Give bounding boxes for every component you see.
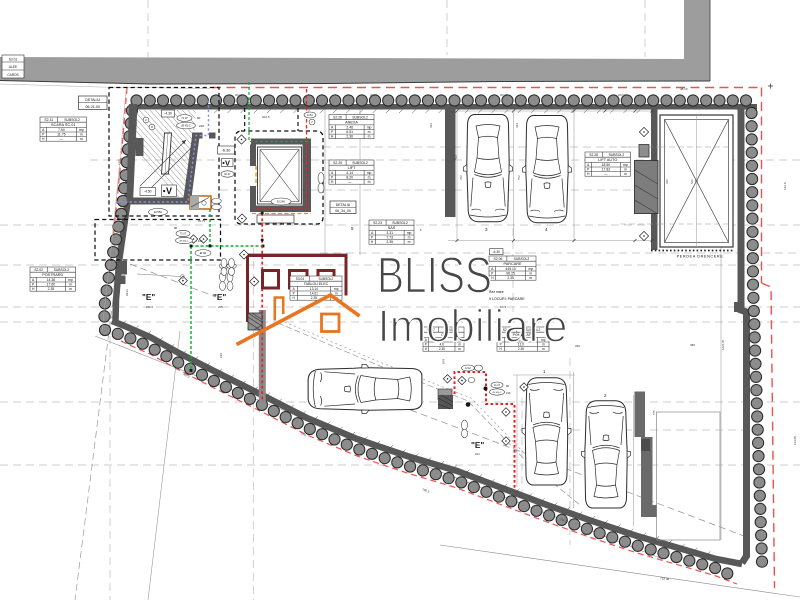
- svg-text:210: 210: [506, 391, 511, 395]
- svg-text:2913: 2913: [125, 289, 129, 296]
- svg-text:-6.30: -6.30: [222, 148, 231, 152]
- svg-text:14.01: 14.01: [310, 292, 318, 296]
- svg-text:ANEXA: ANEXA: [345, 121, 358, 125]
- svg-text:202.5: 202.5: [262, 115, 270, 119]
- svg-text:SUBSOL2: SUBSOL2: [514, 257, 530, 261]
- svg-text:203.5: 203.5: [500, 93, 507, 97]
- svg-text:m: m: [69, 283, 72, 287]
- svg-text:2.35: 2.35: [311, 296, 317, 300]
- svg-text:S2.28: S2.28: [589, 153, 598, 157]
- svg-text:202.5: 202.5: [370, 93, 377, 97]
- svg-text:SUBSOL2: SUBSOL2: [64, 118, 80, 122]
- svg-text:17.60: 17.60: [47, 283, 56, 287]
- svg-text:(El 45)-C: (El 45)-C: [181, 125, 191, 128]
- svg-text:m: m: [368, 176, 371, 180]
- svg-text:241.5: 241.5: [146, 305, 153, 309]
- svg-text:7.73: 7.73: [386, 236, 393, 240]
- svg-text:—: —: [348, 180, 352, 184]
- svg-text:2.35: 2.35: [507, 276, 514, 280]
- svg-text:V: V: [225, 159, 230, 168]
- svg-text:265: 265: [218, 305, 223, 309]
- svg-text:mp: mp: [528, 267, 533, 271]
- svg-text:m: m: [624, 168, 627, 172]
- svg-text:90: 90: [174, 226, 178, 230]
- svg-text:SUBSOL2: SUBSOL2: [319, 277, 334, 281]
- svg-text:PERDEA DRENCERE: PERDEA DRENCERE: [677, 255, 724, 259]
- svg-text:TABLOU ELEC: TABLOU ELEC: [304, 282, 329, 286]
- svg-text:06-21-00: 06-21-00: [86, 105, 100, 109]
- svg-text:mp: mp: [623, 163, 628, 167]
- svg-text:162.0: 162.0: [783, 182, 787, 190]
- svg-text:6.51: 6.51: [346, 130, 353, 134]
- svg-text:PARCARE: PARCARE: [503, 262, 522, 266]
- svg-text:—: —: [604, 172, 608, 176]
- svg-text:472: 472: [459, 175, 463, 180]
- svg-text:m: m: [368, 130, 371, 134]
- svg-text:114.05: 114.05: [793, 436, 797, 445]
- svg-text:V: V: [166, 186, 172, 196]
- svg-text:99.75: 99.75: [198, 219, 205, 223]
- svg-text:752: 752: [517, 175, 521, 180]
- svg-text:SUBSOL2: SUBSOL2: [392, 221, 408, 225]
- svg-text:SUBSOL2: SUBSOL2: [352, 115, 368, 119]
- svg-text:210: 210: [199, 124, 204, 128]
- svg-text:13.14: 13.14: [310, 287, 318, 291]
- svg-text:SAS: SAS: [388, 226, 396, 230]
- svg-text:340: 340: [665, 179, 669, 184]
- svg-text:CAROS: CAROS: [7, 73, 18, 77]
- svg-text:412: 412: [429, 123, 433, 128]
- svg-text:mp: mp: [367, 126, 372, 130]
- svg-text:Imobiliare: Imobiliare: [378, 301, 568, 352]
- svg-text:243: 243: [475, 452, 480, 456]
- svg-text:2.46: 2.46: [346, 126, 353, 130]
- svg-text:71.07: 71.07: [181, 116, 188, 120]
- svg-text:249: 249: [219, 353, 223, 358]
- svg-text:412: 412: [515, 123, 519, 128]
- svg-text:BLISS: BLISS: [377, 247, 492, 304]
- svg-text:S2.06: S2.06: [493, 257, 502, 261]
- svg-text:LIFT AUTO: LIFT AUTO: [598, 158, 617, 162]
- svg-text:m: m: [80, 137, 83, 141]
- svg-text:S2.01: S2.01: [9, 58, 18, 62]
- svg-text:(El 45)-C: (El 45)-C: [180, 241, 189, 243]
- svg-text:"E": "E": [142, 293, 155, 302]
- svg-text:11.75: 11.75: [57, 133, 65, 137]
- svg-text:m: m: [529, 272, 532, 276]
- svg-text:P: P: [293, 292, 295, 296]
- svg-text:S2.02: S2.02: [34, 268, 43, 272]
- svg-text:8.20: 8.20: [346, 176, 353, 180]
- svg-text:S2.25: S2.25: [333, 161, 342, 165]
- svg-text:SUBSOL2: SUBSOL2: [352, 161, 368, 165]
- svg-text:11.07: 11.07: [494, 384, 500, 387]
- svg-text:m: m: [408, 240, 411, 244]
- svg-text:3.31: 3.31: [386, 231, 393, 235]
- svg-text:El 90: El 90: [200, 251, 207, 255]
- svg-text:POSTRARD: POSTRARD: [42, 273, 63, 277]
- svg-text:El 54: El 54: [307, 114, 313, 117]
- svg-text:SUBSOL2: SUBSOL2: [54, 268, 70, 272]
- svg-text:S2.31: S2.31: [44, 118, 53, 122]
- svg-text:mp: mp: [79, 128, 84, 132]
- svg-text:m: m: [69, 287, 72, 291]
- svg-text:-6.30: -6.30: [493, 250, 500, 254]
- svg-text:90: 90: [197, 116, 201, 120]
- svg-text:LIFT: LIFT: [348, 166, 356, 170]
- svg-text:m: m: [368, 180, 371, 184]
- svg-text:mp: mp: [407, 231, 412, 235]
- svg-text:-4.30: -4.30: [164, 112, 172, 116]
- svg-text:El 47: El 47: [225, 172, 231, 176]
- svg-text:SUBSOL2: SUBSOL2: [609, 153, 625, 157]
- svg-text:"E": "E": [471, 441, 484, 450]
- svg-text:96.25: 96.25: [506, 272, 515, 276]
- svg-text:18.50: 18.50: [602, 163, 611, 167]
- svg-text:4.14: 4.14: [346, 171, 353, 175]
- svg-text:71.07: 71.07: [180, 233, 187, 236]
- svg-text:575: 575: [652, 410, 656, 415]
- svg-text:El 240: El 240: [277, 200, 285, 204]
- svg-text:202.5: 202.5: [235, 93, 242, 97]
- svg-text:2.36: 2.36: [346, 135, 353, 139]
- svg-text:1175: 1175: [117, 158, 122, 165]
- svg-text:- 210: - 210: [196, 239, 203, 243]
- svg-text:14.38: 14.38: [47, 278, 56, 282]
- svg-text:445.10: 445.10: [505, 267, 515, 271]
- svg-text:412: 412: [454, 155, 458, 160]
- svg-text:m: m: [368, 135, 371, 139]
- svg-text:mp: mp: [334, 287, 339, 291]
- svg-text:(El 45)-C: (El 45)-C: [493, 392, 502, 394]
- svg-text:SCARA SC.01: SCARA SC.01: [51, 123, 75, 127]
- svg-text:06_34_00: 06_34_00: [335, 209, 351, 213]
- svg-text:DETALIU: DETALIU: [336, 203, 351, 207]
- svg-text:2.35: 2.35: [386, 240, 393, 244]
- svg-text:879: 879: [442, 359, 446, 364]
- svg-text:1223.35: 1223.35: [721, 339, 725, 350]
- svg-text:S2.23: S2.23: [373, 221, 382, 225]
- svg-text:El 42: El 42: [465, 367, 471, 370]
- svg-text:m: m: [335, 292, 338, 296]
- svg-text:2.35: 2.35: [48, 287, 55, 291]
- svg-text:380: 380: [690, 343, 695, 347]
- svg-text:DETALIU: DETALIU: [85, 98, 100, 102]
- svg-text:203.5: 203.5: [618, 93, 625, 97]
- svg-text:mp: mp: [68, 278, 73, 282]
- svg-text:El 552: El 552: [154, 210, 162, 214]
- svg-text:m: m: [529, 276, 532, 280]
- svg-text:mp: mp: [367, 171, 372, 175]
- svg-text:520: 520: [690, 179, 694, 184]
- svg-text:17.82: 17.82: [602, 168, 611, 172]
- svg-text:290: 290: [575, 344, 580, 348]
- svg-text:ALEE: ALEE: [9, 65, 17, 69]
- svg-text:m: m: [624, 172, 627, 176]
- svg-text:m: m: [80, 133, 83, 137]
- svg-text:m: m: [408, 236, 411, 240]
- svg-text:S3.04: S3.04: [296, 277, 305, 281]
- svg-text:"E": "E": [213, 293, 226, 302]
- svg-text:S2.26: S2.26: [333, 115, 342, 119]
- svg-text:7.94: 7.94: [58, 128, 65, 132]
- svg-text:-4.50: -4.50: [144, 190, 152, 194]
- svg-text:48.10: 48.10: [680, 87, 688, 91]
